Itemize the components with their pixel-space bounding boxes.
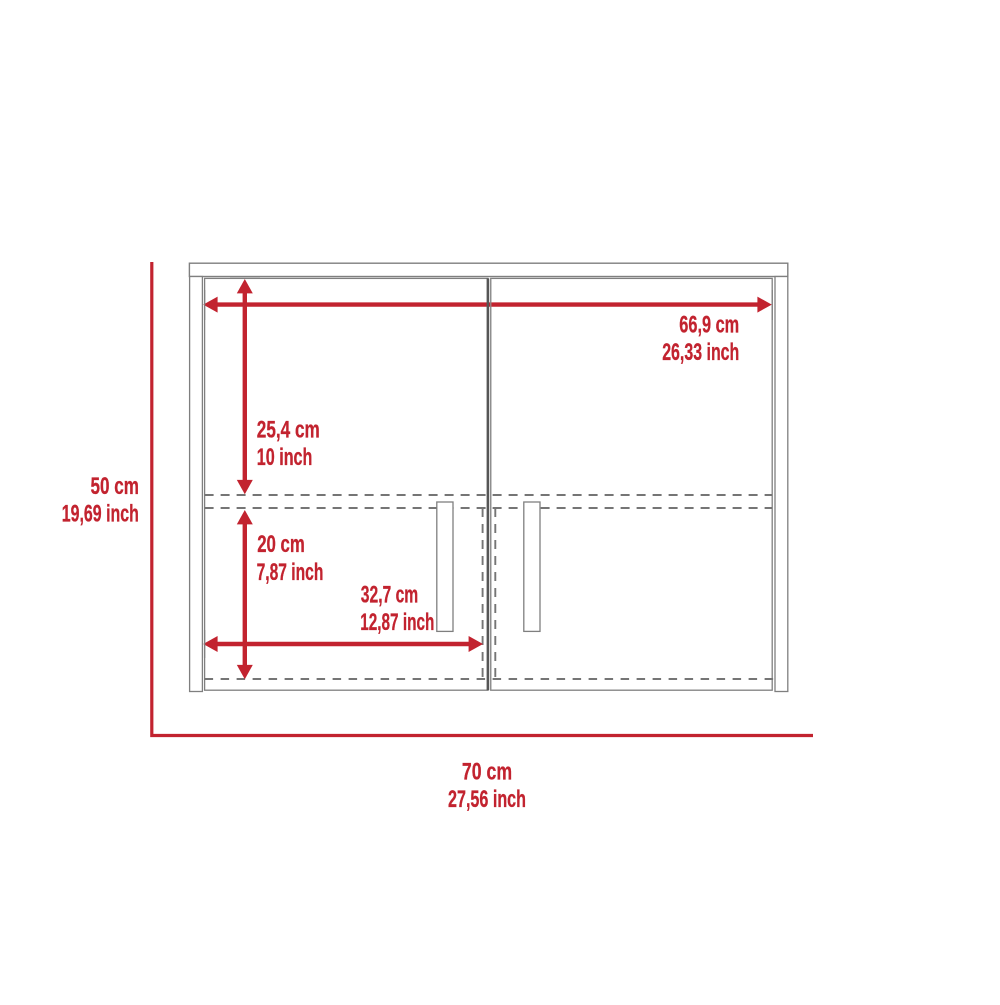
svg-text:70 cm: 70 cm xyxy=(462,758,512,785)
svg-text:20 cm: 20 cm xyxy=(257,531,305,558)
svg-text:50 cm: 50 cm xyxy=(91,473,139,500)
svg-text:66,9 cm: 66,9 cm xyxy=(679,312,739,339)
svg-text:7,87 inch: 7,87 inch xyxy=(257,559,324,586)
svg-text:12,87 inch: 12,87 inch xyxy=(360,609,434,636)
svg-text:27,56 inch: 27,56 inch xyxy=(448,786,526,813)
svg-text:26,33 inch: 26,33 inch xyxy=(662,339,739,366)
svg-text:19,69 inch: 19,69 inch xyxy=(62,500,139,527)
svg-text:32,7 cm: 32,7 cm xyxy=(361,582,418,609)
svg-text:25,4 cm: 25,4 cm xyxy=(257,416,320,443)
svg-text:10 inch: 10 inch xyxy=(257,444,313,471)
